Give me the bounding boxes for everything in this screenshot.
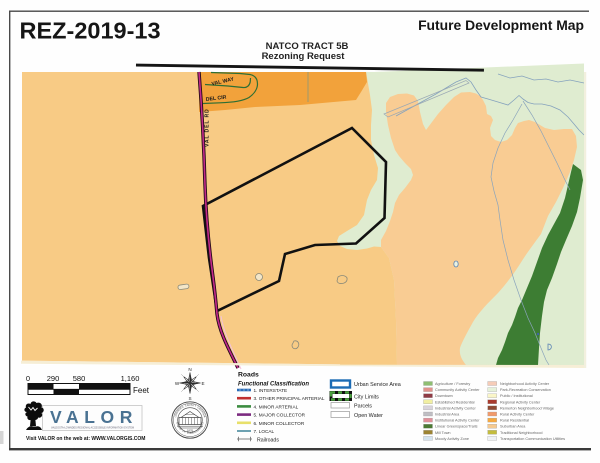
svg-text:1. INTERSTATE: 1. INTERSTATE	[254, 388, 288, 393]
svg-text:Park-Recreation Conservation: Park-Recreation Conservation	[500, 388, 551, 392]
svg-text:4. MINOR ARTERIAL: 4. MINOR ARTERIAL	[254, 404, 299, 409]
svg-text:Neighborhood Activity Center: Neighborhood Activity Center	[500, 382, 550, 386]
svg-text:Established Residential: Established Residential	[435, 400, 475, 404]
svg-text:Traditional Neighborhood: Traditional Neighborhood	[500, 431, 543, 435]
svg-text:N: N	[188, 367, 191, 372]
svg-text:Remerton Neighborhood Village: Remerton Neighborhood Village	[500, 406, 554, 410]
svg-text:REZ-2019-13: REZ-2019-13	[20, 18, 161, 44]
svg-text:S: S	[188, 396, 191, 401]
svg-text:E: E	[201, 381, 204, 386]
svg-text:5. MAJOR COLLECTOR: 5. MAJOR COLLECTOR	[254, 413, 306, 418]
svg-text:Open Water: Open Water	[354, 413, 383, 419]
svg-text:Roads: Roads	[238, 372, 259, 379]
svg-text:Community Activity Center: Community Activity Center	[435, 388, 480, 392]
svg-text:Future Development Map: Future Development Map	[418, 17, 584, 33]
svg-text:6. MINOR COLLECTOR: 6. MINOR COLLECTOR	[254, 421, 305, 426]
svg-text:Rural Residential: Rural Residential	[500, 419, 529, 423]
svg-text:Railroads: Railroads	[257, 437, 279, 443]
svg-text:Downtown: Downtown	[435, 394, 453, 398]
svg-text:Visit VALOR on the web at: WWW: Visit VALOR on the web at: WWW.VALORGIS.…	[26, 436, 145, 442]
svg-text:Parcels: Parcels	[354, 404, 372, 410]
svg-text:Rural Activity Center: Rural Activity Center	[500, 413, 535, 417]
svg-text:W: W	[175, 381, 180, 386]
svg-text:0: 0	[26, 374, 30, 383]
svg-text:7. LOCAL: 7. LOCAL	[254, 429, 275, 434]
svg-text:VAL DEL RD: VAL DEL RD	[205, 108, 211, 147]
svg-text:Public / Institutional: Public / Institutional	[500, 394, 533, 398]
svg-text:Mill Town: Mill Town	[435, 431, 451, 435]
svg-text:1876: 1876	[187, 429, 194, 433]
svg-text:3. OTHER PRINCIPAL ARTERIAL: 3. OTHER PRINCIPAL ARTERIAL	[254, 396, 325, 401]
svg-text:City Limits: City Limits	[354, 395, 379, 401]
svg-text:1,160: 1,160	[121, 374, 140, 383]
svg-text:Linear Greenspace/Trails: Linear Greenspace/Trails	[435, 425, 478, 429]
svg-text:Moody Activity Zone: Moody Activity Zone	[435, 437, 469, 441]
svg-text:Industrial Activity Center: Industrial Activity Center	[435, 406, 476, 410]
svg-text:Transportation Communication U: Transportation Communication Utilities	[500, 437, 565, 441]
svg-text:Agriculture / Forestry: Agriculture / Forestry	[435, 382, 470, 386]
svg-text:Industrial Area: Industrial Area	[435, 413, 460, 417]
svg-text:Institutional Activity Center: Institutional Activity Center	[435, 419, 480, 423]
svg-text:VALDOSTA-LOWNDES REGIONAL ACCE: VALDOSTA-LOWNDES REGIONAL ACCESSIBLE INF…	[51, 426, 134, 429]
svg-text:Suburban Area: Suburban Area	[500, 425, 526, 429]
svg-text:Feet: Feet	[133, 386, 150, 395]
svg-text:Urban Service Area: Urban Service Area	[354, 382, 401, 388]
svg-text:290: 290	[47, 374, 60, 383]
svg-text:VALOR: VALOR	[50, 407, 138, 427]
svg-text:Functional Classification: Functional Classification	[238, 382, 309, 388]
svg-text:Regional Activity Center: Regional Activity Center	[500, 400, 541, 404]
svg-text:Rezoning Request: Rezoning Request	[262, 51, 346, 62]
svg-text:580: 580	[73, 374, 86, 383]
